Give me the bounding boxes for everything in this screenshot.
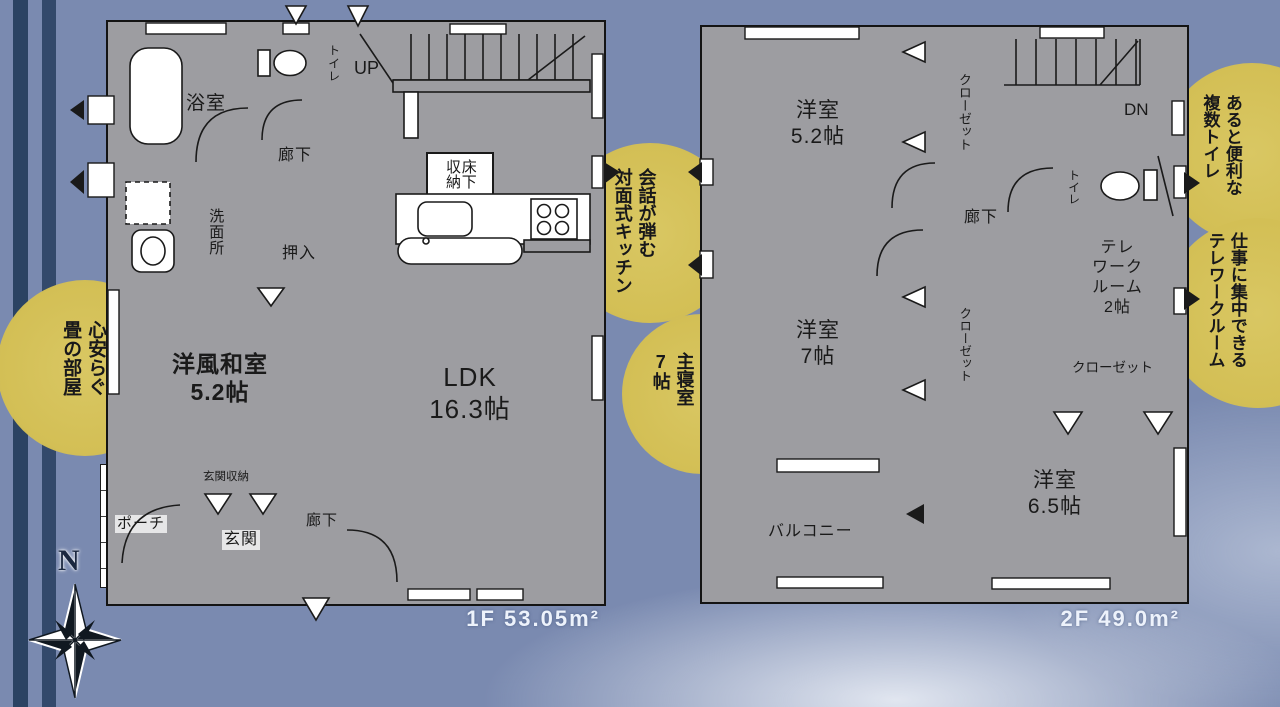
floorplan-flyer: { "colors":{"bg":"#7a8ab0","stripe1":"#2… (0, 0, 1280, 707)
ldk-size: 16.3帖 (429, 394, 511, 424)
closet-mid-2f-label: クローゼット (1072, 360, 1153, 376)
callout-text-telework: 仕事に集中できるテレワークルーム (1203, 232, 1248, 396)
tatami-name: 洋風和室 (172, 351, 268, 377)
callout-text-kitchen: 会話が弾む対面式キッチン (610, 168, 658, 300)
room-65-size: 6.5帖 (1028, 495, 1082, 518)
callout-text-toilets: あると便利な複数トイレ (1198, 94, 1243, 220)
washer-label: 洗 (138, 192, 154, 210)
room-toilet-2f-label: トイレ (1066, 160, 1081, 214)
floor1-plan (106, 20, 606, 606)
room-65-name: 洋室 (1033, 469, 1077, 492)
room-balcony-label: バルコニー (768, 522, 853, 542)
compass-north-label: N (58, 544, 80, 578)
room-bath-label: 浴室 (186, 92, 226, 115)
room-52-name: 洋室 (796, 99, 840, 122)
closet-top-2f-label: クローゼット (956, 48, 972, 176)
floor-storage-label: 床下収納 (444, 159, 476, 197)
telework-line2: ワーク (1092, 259, 1143, 276)
room-washroom-label: 洗面所 (206, 190, 224, 274)
telework-line4: 2帖 (1104, 299, 1131, 316)
floor2-area-label: 2F 49.0m² (1010, 606, 1180, 632)
room-ldk-label: LDK 16.3帖 (398, 362, 542, 425)
room-oshiire-label: 押入 (282, 244, 316, 264)
telework-line3: ルーム (1092, 279, 1143, 296)
room-hall-upper-1f-label: 廊下 (278, 146, 312, 166)
telework-line1: テレ (1100, 239, 1134, 256)
room-porch-label: ポーチ (115, 515, 167, 533)
room-7-name: 洋室 (796, 319, 840, 342)
room-52-size: 5.2帖 (791, 125, 845, 148)
room-7-label: 洋室 7帖 (770, 318, 866, 369)
stairs-dn-label: DN (1124, 100, 1149, 121)
room-telework-label: テレ ワーク ルーム 2帖 (1070, 238, 1165, 318)
stairs-up-label: UP (354, 58, 379, 80)
callout-text-bedroom: 主寝室7帖 (648, 352, 696, 424)
callout-text-tatami: 心安らぐ畳の部屋 (58, 320, 108, 424)
floor1-area-label: 1F 53.05m² (430, 606, 600, 632)
room-7-size: 7帖 (801, 345, 836, 368)
room-52-label: 洋室 5.2帖 (770, 98, 866, 149)
room-hall-lower-1f-label: 廊下 (306, 512, 338, 530)
tatami-size: 5.2帖 (191, 379, 250, 405)
room-hall-2f-label: 廊下 (964, 208, 998, 228)
ldk-name: LDK (443, 362, 497, 392)
room-tatami-label: 洋風和室 5.2帖 (140, 350, 300, 406)
floor-storage-box: 床下収納 (426, 152, 494, 204)
closet-right-2f-label: クローゼット (956, 290, 971, 398)
entrance-storage-label: 玄関収納 (203, 470, 249, 484)
room-toilet-1f-label: トイレ (326, 38, 341, 88)
room-65-label: 洋室 6.5帖 (1000, 468, 1110, 519)
room-entrance-label: 玄関 (222, 530, 260, 550)
